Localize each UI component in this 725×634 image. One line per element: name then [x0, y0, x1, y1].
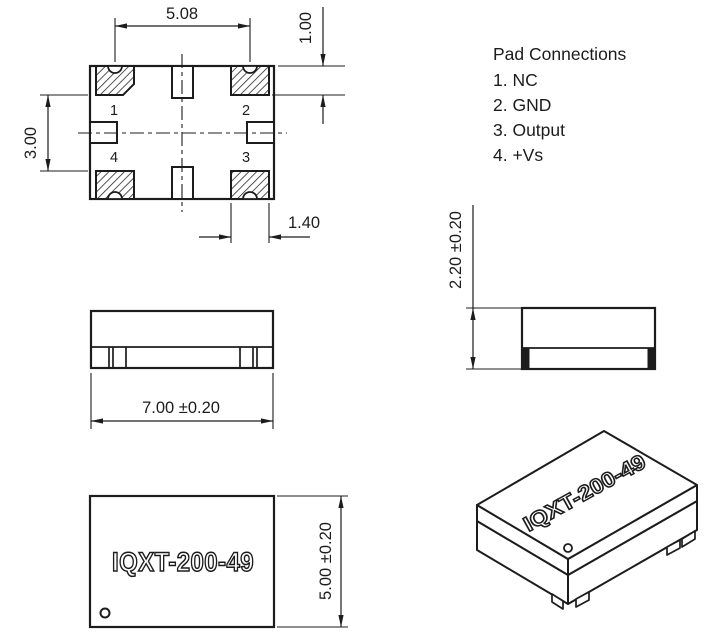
dim-3-00-label: 3.00 — [22, 127, 40, 159]
pad-connection-item-3: 3. Output — [493, 120, 565, 140]
castellation-notch-2 — [243, 66, 257, 73]
top-view: 1 2 4 3 — [78, 54, 287, 212]
part-number-label: IQXT-200-49 — [112, 547, 254, 577]
side-view — [522, 308, 655, 369]
dim-pad-height: 1.00 — [272, 7, 345, 124]
bottom-view: IQXT-200-49 — [90, 496, 274, 627]
front-view-body — [91, 311, 273, 368]
dim-5-00-label: 5.00 ±0.20 — [317, 522, 335, 600]
dim-5-08-label: 5.08 — [166, 5, 198, 23]
iso-view: IQXT-200-49 — [477, 431, 697, 609]
pad-1-label: 1 — [110, 103, 118, 119]
front-view — [91, 311, 273, 368]
pad-4-label: 4 — [110, 150, 118, 166]
pad-connection-item-4: 4. +Vs — [493, 145, 543, 165]
pad-3-label: 3 — [242, 150, 250, 166]
pad-connections-list: Pad Connections 1. NC 2. GND 3. Output 4… — [493, 44, 627, 165]
dim-2-20-label: 2.20 ±0.20 — [447, 211, 465, 289]
castellation-notch-3 — [243, 192, 257, 199]
dim-body-width: 5.00 ±0.20 — [277, 496, 348, 627]
dim-1-40-label: 1.40 — [288, 214, 320, 232]
side-view-pad-left — [522, 348, 529, 369]
dim-body-height: 2.20 ±0.20 — [447, 205, 521, 369]
pad-2-label: 2 — [242, 103, 250, 119]
dim-pad-span-horizontal: 5.08 — [115, 5, 250, 62]
side-view-pad-right — [648, 348, 655, 369]
iso-pin1-marker-dot — [564, 544, 572, 552]
dim-1-00-label: 1.00 — [297, 12, 315, 44]
drawing-canvas: 1 2 4 3 5.08 1.00 3.00 1.40 Pad Connecti… — [0, 0, 725, 634]
castellation-notch-1 — [108, 66, 122, 73]
pin1-marker-dot — [101, 609, 110, 618]
pad-connections-title: Pad Connections — [493, 44, 627, 64]
pad-connection-item-1: 1. NC — [493, 70, 538, 90]
castellation-notch-4 — [108, 192, 122, 199]
dim-7-00-label: 7.00 ±0.20 — [142, 399, 220, 417]
package-drawing-page: 1 2 4 3 5.08 1.00 3.00 1.40 Pad Connecti… — [0, 0, 725, 634]
side-view-body — [522, 308, 655, 369]
dim-body-length: 7.00 ±0.20 — [91, 373, 273, 429]
dim-pad-width: 1.40 — [199, 203, 320, 243]
pad-connection-item-2: 2. GND — [493, 95, 551, 115]
